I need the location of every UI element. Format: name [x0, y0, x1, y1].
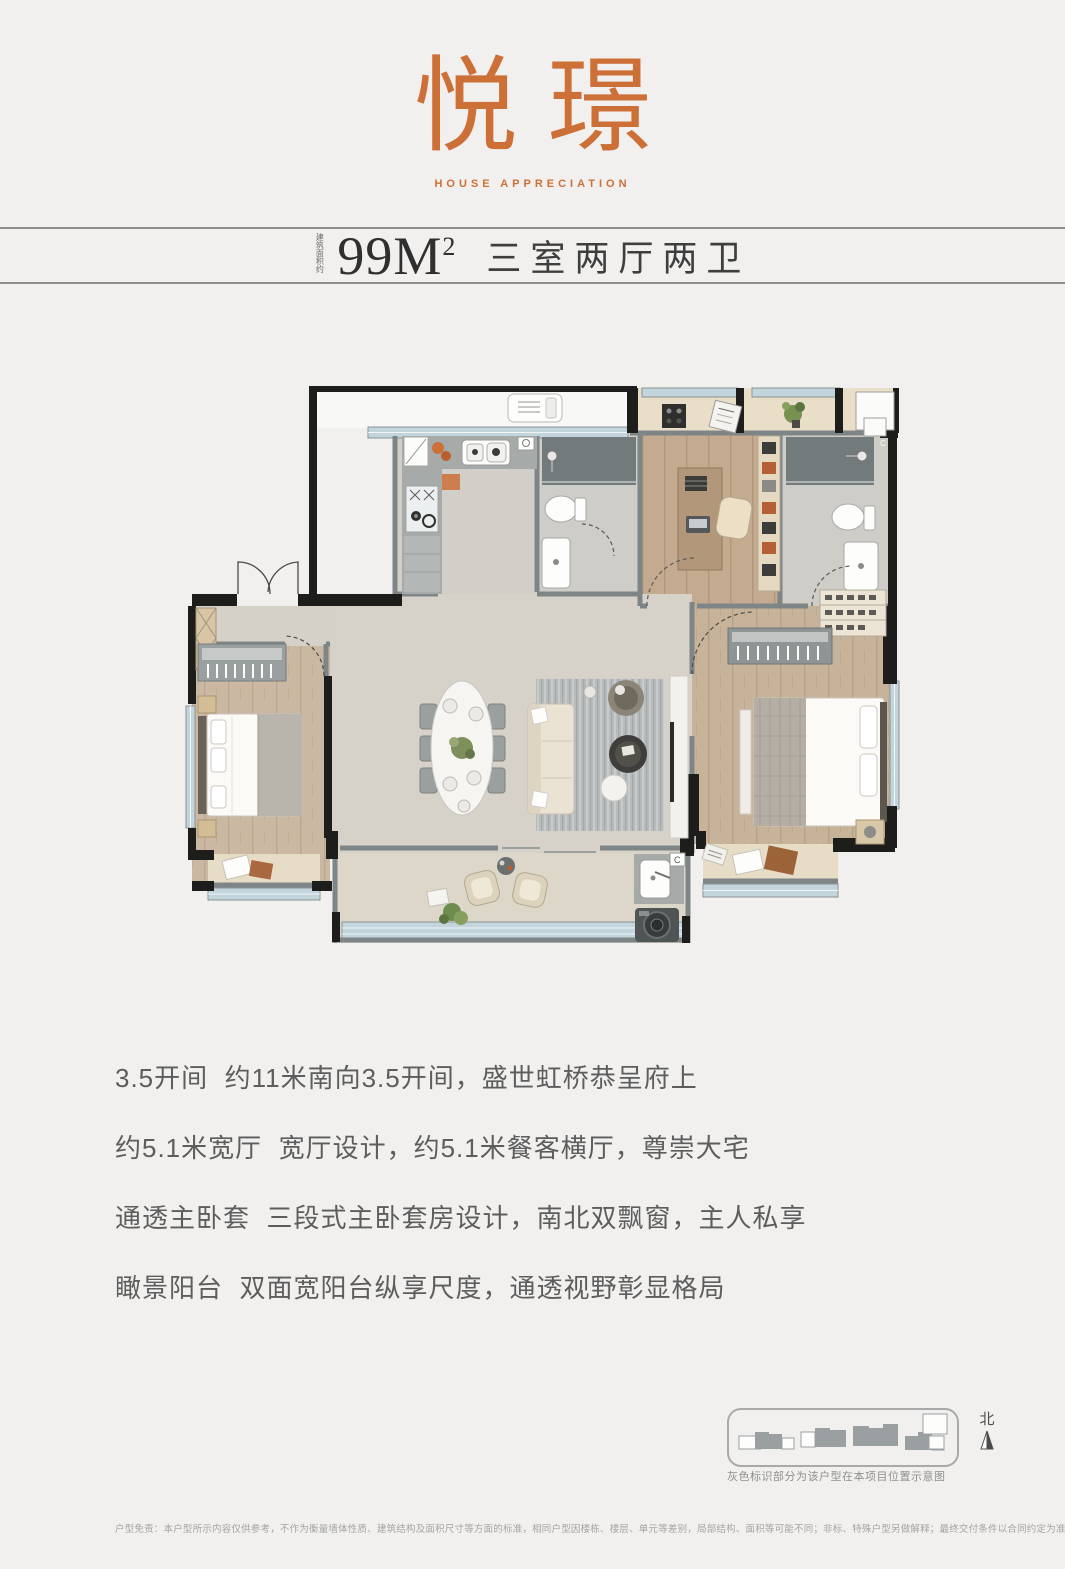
entry-door	[238, 562, 298, 594]
feature-line: 约5.1米宽厅 宽厅设计，约5.1米餐客横厅，尊崇大宅	[115, 1128, 955, 1165]
north-label: 北	[972, 1408, 1002, 1429]
feature-line: 瞰景阳台 双面宽阳台纵享尺度，通透视野彰显格局	[115, 1268, 955, 1305]
feature-line: 通透主卧套 三段式主卧套房设计，南北双飘窗，主人私享	[115, 1198, 955, 1235]
north-indicator: 北	[972, 1408, 1002, 1456]
area-prefix: 建筑面积约	[315, 233, 324, 279]
brochure-page: 悦璟 HOUSE APPRECIATION 建筑面积约 99M2 三室两厅两卫	[0, 0, 1065, 1569]
area-value: 99M2	[337, 229, 456, 283]
brand-title: 悦璟	[0, 48, 1065, 168]
compass-icon	[979, 1429, 995, 1451]
top-balcony-floor	[313, 388, 630, 428]
feature-list: 3.5开间 约11米南向3.5开间，盛世虹桥恭呈府上 约5.1米宽厅 宽厅设计，…	[115, 1058, 955, 1338]
washer-top	[508, 394, 562, 422]
site-caption: 灰色标识部分为该户型在本项目位置示意图	[727, 1468, 946, 1484]
layout-label: 三室两厅两卫	[486, 229, 750, 281]
disclaimer-text: 户型免责：本户型所示内容仅供参考，不作为衡量墙体性质、建筑结构及面积尺寸等方面的…	[115, 1521, 995, 1535]
site-buildings	[729, 1410, 953, 1461]
feature-line: 3.5开间 约11米南向3.5开间，盛世虹桥恭呈府上	[115, 1058, 955, 1095]
site-location-map	[727, 1408, 959, 1467]
svg-text:C: C	[880, 439, 886, 448]
svg-text:C: C	[674, 855, 681, 865]
spec-band: 建筑面积约 99M2 三室两厅两卫	[0, 227, 1065, 284]
brand-subtitle: HOUSE APPRECIATION	[0, 178, 1065, 190]
floor-plan-image: C	[180, 376, 900, 961]
